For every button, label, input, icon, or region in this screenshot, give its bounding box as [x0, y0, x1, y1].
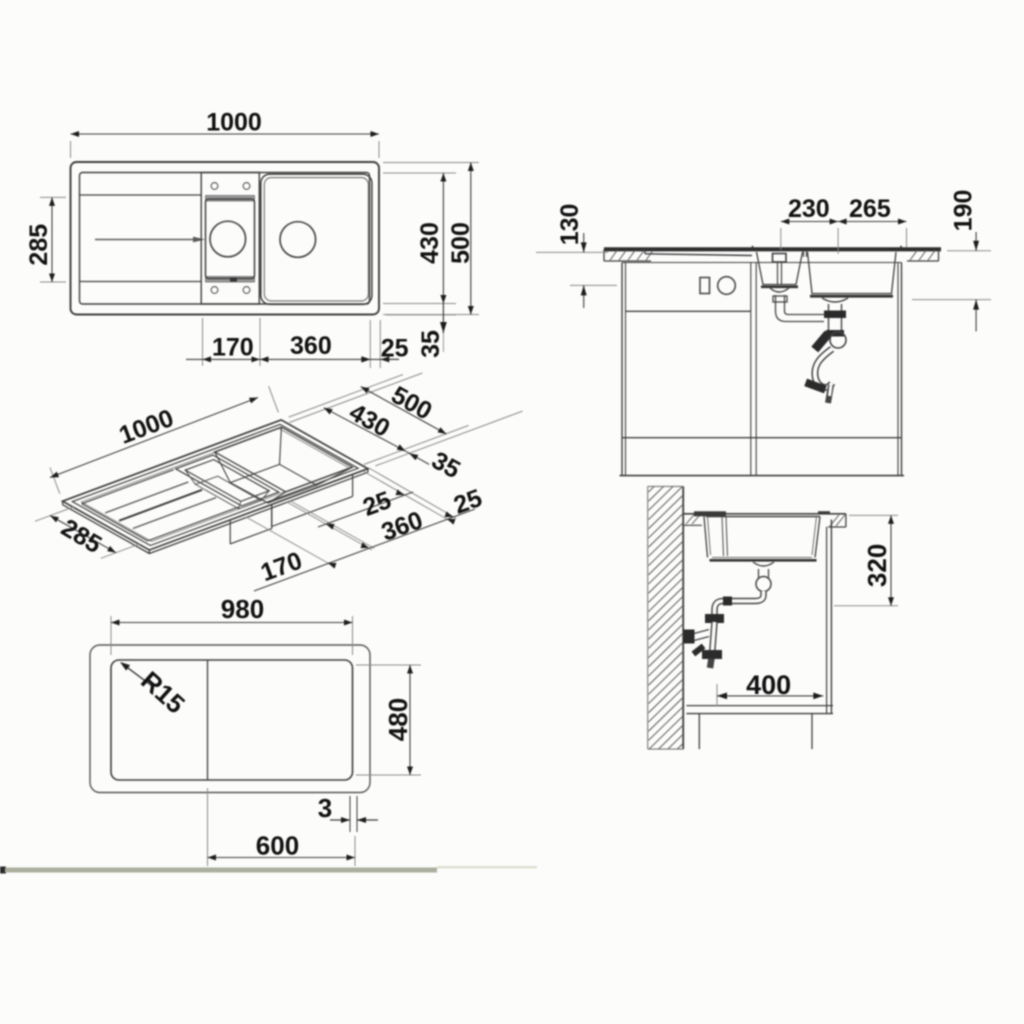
svg-text:190: 190	[950, 190, 978, 232]
svg-text:360: 360	[290, 332, 332, 360]
svg-text:1000: 1000	[206, 109, 262, 137]
svg-text:430: 430	[416, 222, 444, 264]
svg-text:400: 400	[746, 670, 791, 700]
svg-text:230: 230	[788, 195, 830, 223]
svg-text:480: 480	[383, 698, 413, 741]
svg-text:600: 600	[256, 830, 299, 860]
svg-text:500: 500	[447, 222, 475, 264]
svg-text:3: 3	[318, 793, 332, 823]
svg-text:285: 285	[25, 224, 53, 266]
svg-text:35: 35	[417, 330, 445, 358]
svg-text:130: 130	[556, 204, 584, 246]
svg-text:25: 25	[381, 335, 409, 363]
svg-text:320: 320	[862, 544, 892, 587]
svg-text:980: 980	[221, 594, 264, 624]
svg-text:265: 265	[849, 195, 891, 223]
svg-text:170: 170	[212, 334, 254, 362]
